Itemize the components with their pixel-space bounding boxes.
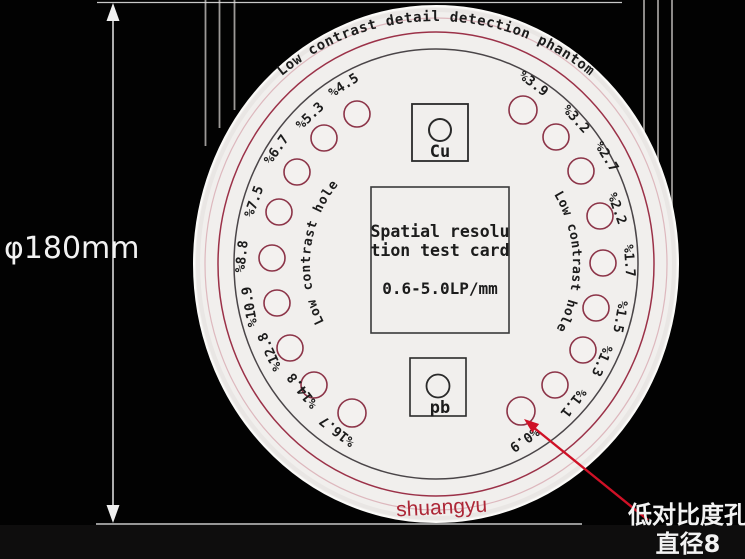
diameter-label: φ180mm bbox=[4, 231, 140, 266]
hole-label: %8.8 bbox=[232, 240, 251, 274]
contrast-hole bbox=[583, 295, 609, 321]
contrast-hole bbox=[590, 250, 616, 276]
card-line1: Spatial resolu bbox=[370, 222, 509, 241]
contrast-hole bbox=[570, 337, 596, 363]
contrast-hole bbox=[338, 399, 366, 427]
contrast-hole bbox=[509, 96, 537, 124]
contrast-hole bbox=[542, 372, 568, 398]
callout-line2: 直径8 bbox=[656, 530, 721, 558]
callout-line1: 低对比度孔 bbox=[627, 501, 745, 529]
hole-label: %1.7 bbox=[620, 244, 638, 278]
contrast-hole-pointed bbox=[507, 397, 535, 425]
contrast-hole bbox=[344, 101, 370, 127]
contrast-hole bbox=[264, 290, 290, 316]
card-line3: 0.6-5.0LP/mm bbox=[382, 279, 498, 298]
contrast-hole bbox=[568, 158, 594, 184]
product-photo: Low contrast detail detection phantom Lo… bbox=[0, 0, 745, 559]
phantom-disc: Low contrast detail detection phantom Lo… bbox=[194, 6, 678, 522]
contrast-hole bbox=[266, 199, 292, 225]
contrast-hole bbox=[311, 125, 337, 151]
table-reflection bbox=[0, 525, 745, 559]
contrast-hole bbox=[284, 159, 310, 185]
contrast-hole bbox=[543, 124, 569, 150]
pb-label: pb bbox=[430, 398, 450, 418]
contrast-hole bbox=[259, 245, 285, 271]
watermark-text: shuangyu bbox=[396, 494, 488, 522]
cu-label: Cu bbox=[430, 142, 450, 162]
card-line2: tion test card bbox=[370, 241, 509, 260]
scene: Low contrast detail detection phantom Lo… bbox=[0, 0, 745, 559]
